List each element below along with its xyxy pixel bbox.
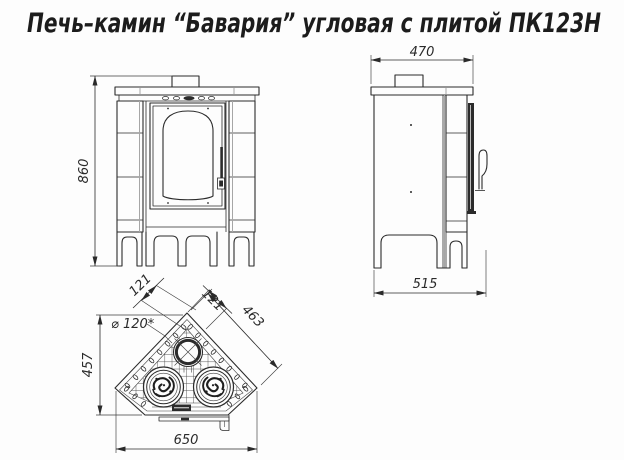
perforation-slot [203,340,209,346]
drawing-title: Печь–камин “Бавария” угловая с плитой ПК… [27,8,601,39]
dim-text-515: 515 [413,277,438,292]
perforation-slot [242,386,248,392]
perforation-slot [164,341,170,347]
perforation-slot [195,332,201,338]
perforation-slot [140,366,146,372]
perforation-slot [124,386,130,392]
perforation-slot [234,374,240,380]
front-top-plate [115,87,259,95]
top-right-burner [194,367,234,407]
perforation-slot [148,357,154,363]
drawing-sheet: Печь–камин “Бавария” угловая с плитой ПК… [0,0,624,460]
front-chimney-collar [172,76,199,87]
front-door-glass [163,111,213,200]
dim-text-463: 463 [238,302,266,330]
side-top-plate [371,87,473,95]
dim-text-121-left: 121 [126,271,154,299]
perforation-slot [156,349,162,355]
top-flue-circle [174,338,203,367]
front-left-column [117,101,143,232]
side-tile-column [446,95,467,232]
top-view: ⌀ 120* 457 650 463 [81,271,282,453]
perforation-slot [132,393,138,399]
front-right-column [229,101,255,232]
front-view: 860 [77,76,259,266]
front-door [150,103,225,209]
perforation-slot [226,366,232,372]
side-legs [374,232,467,268]
perforation-slot [132,374,138,380]
dim-text-650: 650 [174,433,199,448]
dim-text-860: 860 [77,159,92,184]
perforation-slot [140,401,146,407]
dim-text-121-right: 121 [198,286,226,314]
dim-text-457: 457 [81,352,96,378]
dim-text-470: 470 [410,45,435,60]
top-front-strip [159,417,229,421]
dimension-515: 515 [374,250,486,297]
perforation-slot [218,357,224,363]
dimension-121-right: 121 [188,286,232,330]
front-legs [117,232,254,266]
perforation-slot [210,349,216,355]
front-door-handle [218,147,225,189]
dimension-flue: ⌀ 120* [111,317,172,343]
side-door-edge [468,103,474,211]
perforation-slot [187,324,193,330]
perforation-slot [234,393,240,399]
side-chimney-collar [395,75,423,87]
front-air-vents [163,96,215,100]
side-view: 470 [371,45,487,297]
side-door-handle [479,150,487,189]
dimension-470: 470 [371,45,473,84]
technical-drawing: Печь–камин “Бавария” угловая с плитой ПК… [0,0,624,460]
top-left-burner [144,367,184,407]
perforation-slot [172,332,178,338]
